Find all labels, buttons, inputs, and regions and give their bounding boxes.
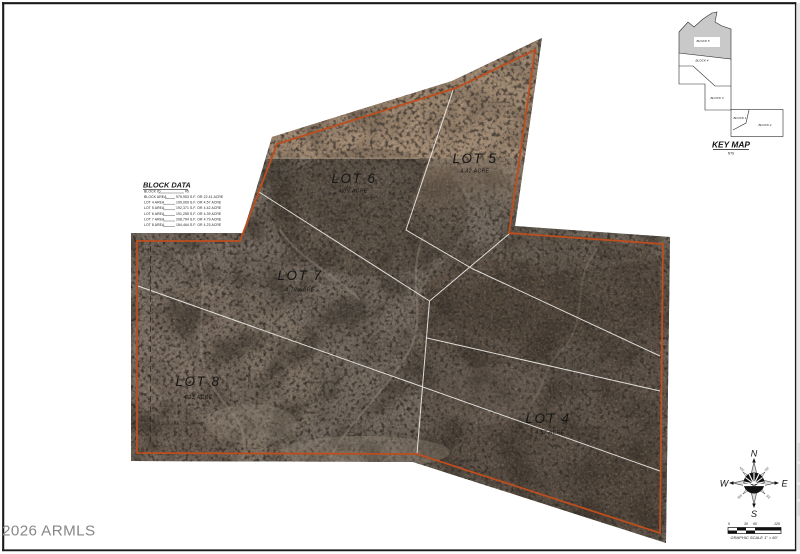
svg-text:4.79 ACRE: 4.79 ACRE bbox=[285, 288, 314, 294]
svg-text:LOT 5: LOT 5 bbox=[452, 151, 497, 166]
svg-text:BLOCK 2: BLOCK 2 bbox=[758, 123, 771, 127]
svg-text:LOT 5 AREA: LOT 5 AREA bbox=[144, 206, 165, 210]
svg-text:LOT 6: LOT 6 bbox=[331, 171, 376, 186]
svg-text:BLOCK 4: BLOCK 4 bbox=[695, 59, 708, 63]
svg-text:2026 ARMLS: 2026 ARMLS bbox=[2, 523, 96, 540]
svg-text:BLOCK 3: BLOCK 3 bbox=[710, 96, 723, 100]
svg-text:120: 120 bbox=[774, 522, 780, 526]
svg-text:184,464 S.F. OR 4.23 ACRE: 184,464 S.F. OR 4.23 ACRE bbox=[176, 223, 222, 227]
svg-text:191,255 S.F. OR 4.39 ACRE: 191,255 S.F. OR 4.39 ACRE bbox=[176, 212, 222, 216]
svg-text:BLOCK 1: BLOCK 1 bbox=[733, 116, 746, 120]
svg-text:60: 60 bbox=[753, 522, 757, 526]
svg-text:LOT 8 AREA: LOT 8 AREA bbox=[144, 223, 165, 227]
svg-text:GRAPHIC SCALE 1" = 60': GRAPHIC SCALE 1" = 60' bbox=[731, 535, 778, 540]
svg-text:LOT 7 AREA: LOT 7 AREA bbox=[144, 217, 165, 221]
svg-text:BLOCK ID: BLOCK ID bbox=[144, 189, 161, 193]
svg-text:975,953 S.F. OR 22.41 ACRE: 975,953 S.F. OR 22.41 ACRE bbox=[176, 195, 224, 199]
svg-text:#5: #5 bbox=[185, 189, 189, 193]
svg-text:4.39 ACRE: 4.39 ACRE bbox=[338, 189, 367, 195]
svg-text:N: N bbox=[751, 449, 758, 459]
svg-text:LOT 6 AREA: LOT 6 AREA bbox=[144, 212, 165, 216]
svg-text:4.23 ACRE: 4.23 ACRE bbox=[183, 395, 212, 401]
svg-text:0: 0 bbox=[728, 522, 730, 526]
svg-text:4.42 ACRE: 4.42 ACRE bbox=[460, 169, 489, 175]
svg-text:BLOCK 5: BLOCK 5 bbox=[696, 39, 709, 43]
svg-text:208,794 S.F. OR 4.79 ACRE: 208,794 S.F. OR 4.79 ACRE bbox=[176, 217, 222, 221]
svg-text:LOT 4: LOT 4 bbox=[525, 411, 570, 426]
svg-text:192,371 S.F. OR 4.42 ACRE: 192,371 S.F. OR 4.42 ACRE bbox=[176, 206, 222, 210]
svg-text:LOT 8: LOT 8 bbox=[175, 374, 220, 389]
svg-text:LOT 4 AREA: LOT 4 AREA bbox=[144, 201, 165, 205]
svg-text:BLOCK AREA: BLOCK AREA bbox=[144, 195, 167, 199]
svg-text:199,069 S.F. OR 4.57 ACRE: 199,069 S.F. OR 4.57 ACRE bbox=[176, 201, 222, 205]
svg-text:KEY MAP: KEY MAP bbox=[712, 140, 750, 150]
svg-text:30: 30 bbox=[744, 522, 748, 526]
svg-text:BLOCK DATA: BLOCK DATA bbox=[143, 181, 191, 190]
svg-text:LOT 7: LOT 7 bbox=[277, 268, 322, 283]
svg-text:NTS: NTS bbox=[728, 152, 734, 156]
svg-text:S: S bbox=[751, 509, 757, 519]
svg-text:E: E bbox=[781, 479, 788, 489]
svg-text:4.57 ACRE: 4.57 ACRE bbox=[535, 430, 564, 436]
